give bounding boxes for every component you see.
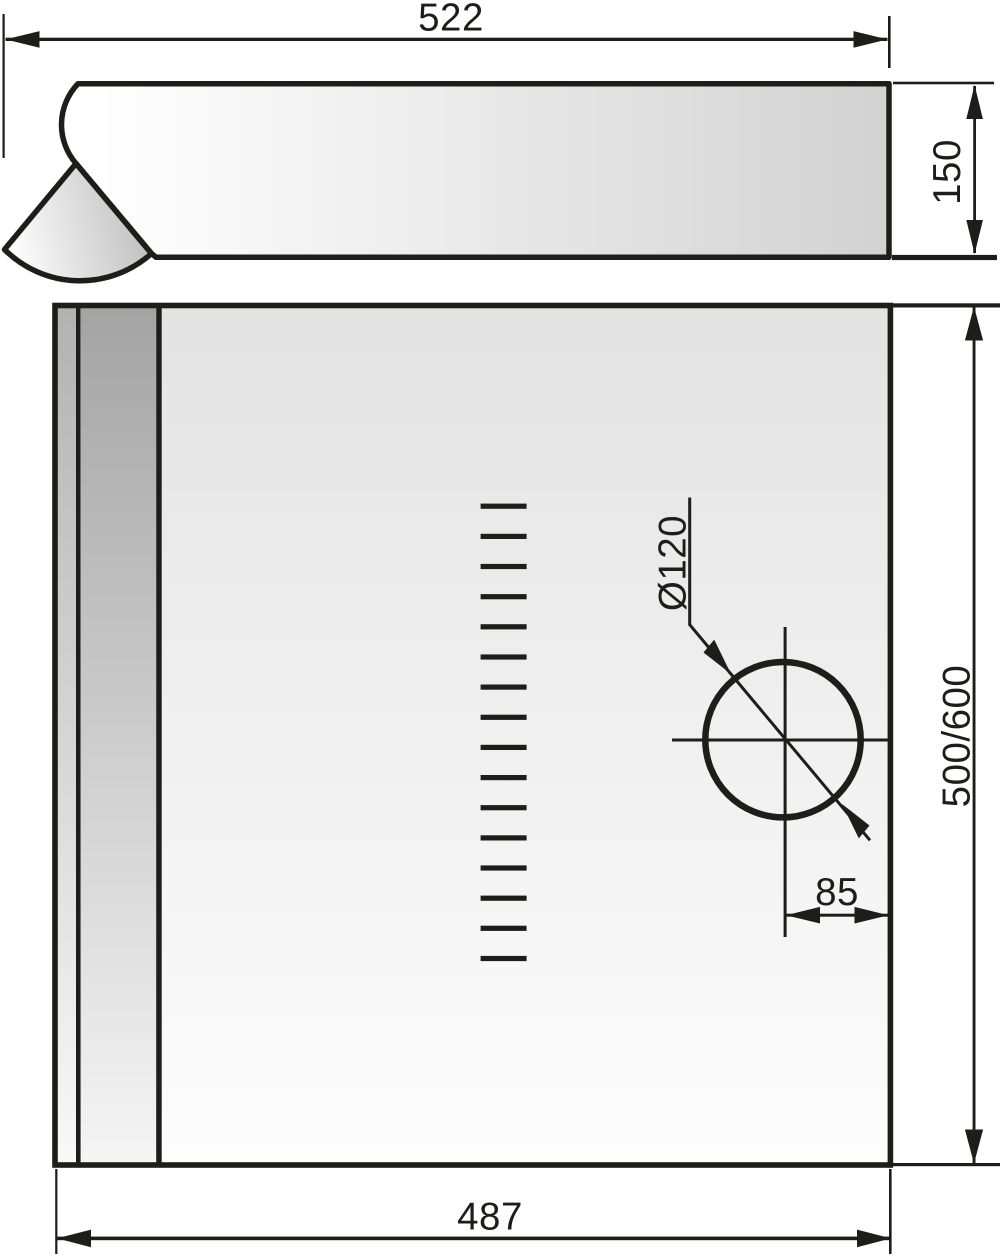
svg-text:487: 487 — [457, 1196, 523, 1239]
svg-text:522: 522 — [418, 0, 484, 40]
svg-text:500/600: 500/600 — [936, 665, 979, 808]
svg-text:Ø120: Ø120 — [652, 515, 695, 611]
svg-text:150: 150 — [926, 139, 969, 205]
svg-text:85: 85 — [815, 871, 859, 914]
